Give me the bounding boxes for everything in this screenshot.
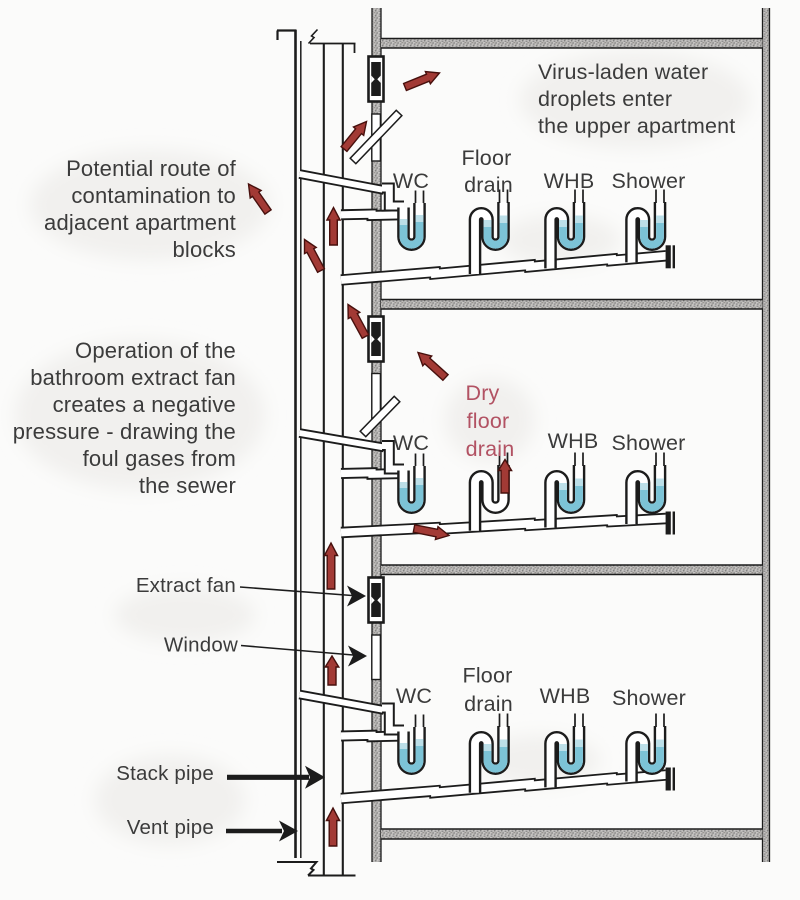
- svg-text:Operation of the: Operation of the: [75, 338, 236, 363]
- svg-text:the upper apartment: the upper apartment: [538, 114, 735, 138]
- svg-text:WC: WC: [393, 431, 429, 455]
- svg-text:Window: Window: [164, 634, 238, 657]
- svg-text:Virus-laden water: Virus-laden water: [538, 60, 708, 84]
- svg-text:Shower: Shower: [611, 169, 685, 193]
- svg-text:creates a negative: creates a negative: [53, 392, 236, 417]
- svg-text:adjacent apartment: adjacent apartment: [44, 210, 236, 235]
- svg-text:foul gases from: foul gases from: [83, 446, 236, 471]
- svg-text:Stack pipe: Stack pipe: [116, 762, 214, 785]
- svg-text:WC: WC: [396, 684, 432, 708]
- svg-text:bathroom extract fan: bathroom extract fan: [30, 365, 236, 390]
- svg-text:Floor: Floor: [462, 146, 512, 170]
- svg-text:blocks: blocks: [172, 237, 236, 262]
- svg-text:contamination to: contamination to: [71, 183, 236, 208]
- svg-text:WHB: WHB: [548, 429, 599, 453]
- svg-text:Potential route of: Potential route of: [66, 156, 237, 181]
- svg-text:drain: drain: [466, 437, 515, 461]
- svg-text:the sewer: the sewer: [139, 473, 236, 498]
- svg-text:Vent pipe: Vent pipe: [127, 816, 214, 839]
- svg-text:Dry: Dry: [465, 381, 499, 405]
- svg-text:drain: drain: [464, 173, 513, 197]
- svg-text:drain: drain: [464, 692, 513, 716]
- svg-text:floor: floor: [467, 409, 510, 433]
- svg-text:pressure - drawing the: pressure - drawing the: [13, 419, 236, 444]
- svg-text:Floor: Floor: [463, 664, 513, 688]
- svg-text:Shower: Shower: [612, 686, 686, 710]
- svg-text:Shower: Shower: [611, 431, 685, 455]
- svg-text:WC: WC: [393, 169, 429, 193]
- svg-text:droplets enter: droplets enter: [538, 87, 672, 111]
- svg-text:WHB: WHB: [540, 684, 591, 708]
- svg-text:Extract fan: Extract fan: [136, 574, 236, 597]
- svg-text:WHB: WHB: [544, 169, 595, 193]
